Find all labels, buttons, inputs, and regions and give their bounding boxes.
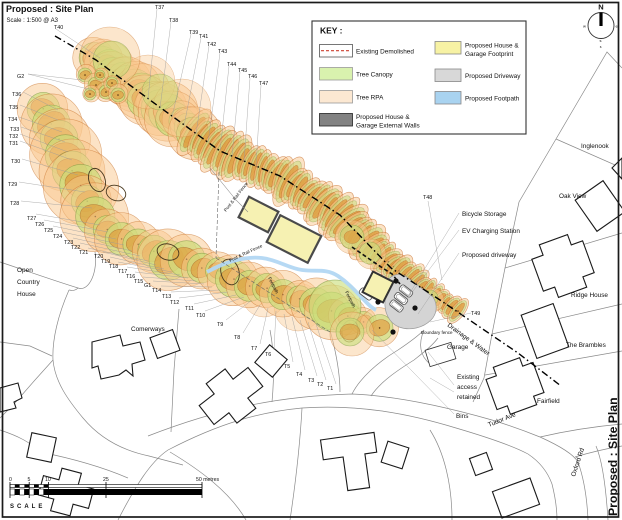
svg-text:SCALE: SCALE: [10, 504, 45, 510]
svg-text:T36: T36: [12, 92, 21, 98]
svg-text:G2: G2: [17, 74, 24, 80]
svg-text:T37: T37: [155, 5, 164, 11]
svg-text:Tree RPA: Tree RPA: [356, 95, 384, 102]
svg-text:s: s: [600, 38, 602, 43]
svg-text:T35: T35: [9, 105, 18, 111]
svg-text:Existing Demolished: Existing Demolished: [356, 49, 414, 56]
svg-text:T26: T26: [35, 222, 44, 228]
svg-text:Garage Footprint: Garage Footprint: [465, 51, 514, 58]
svg-text:T11: T11: [185, 306, 194, 312]
svg-text:T7: T7: [251, 346, 257, 352]
svg-text:House: House: [17, 291, 36, 298]
svg-text:Tree Canopy: Tree Canopy: [356, 72, 394, 79]
svg-text:Proposed Driveway: Proposed Driveway: [465, 73, 521, 80]
svg-text:w: w: [583, 24, 586, 29]
svg-text:T45: T45: [238, 68, 247, 74]
svg-text:50 metres: 50 metres: [196, 477, 219, 483]
svg-text:T2: T2: [317, 382, 323, 388]
svg-text:T25: T25: [44, 228, 53, 234]
svg-text:access: access: [457, 384, 477, 391]
svg-text:Ridge House: Ridge House: [571, 292, 608, 299]
svg-text:N: N: [598, 3, 603, 12]
svg-text:T3: T3: [308, 378, 314, 384]
svg-text:Proposed driveway: Proposed driveway: [462, 252, 517, 259]
svg-text:T4: T4: [296, 372, 302, 378]
svg-text:Proposed House &: Proposed House &: [356, 114, 410, 121]
svg-text:T21: T21: [79, 250, 88, 256]
svg-text:Bicycle Storage: Bicycle Storage: [462, 211, 507, 218]
svg-text:T32: T32: [9, 134, 18, 140]
svg-text:Inglenook: Inglenook: [581, 143, 610, 150]
svg-text:Fairfield: Fairfield: [537, 398, 560, 405]
svg-text:Bins: Bins: [456, 413, 468, 420]
svg-text:T47: T47: [259, 81, 268, 87]
svg-text:T40: T40: [54, 25, 63, 31]
svg-text:Country: Country: [17, 279, 41, 286]
svg-text:T28: T28: [10, 201, 19, 207]
svg-text:T8: T8: [234, 335, 240, 341]
svg-text:Comerways: Comerways: [131, 326, 165, 333]
svg-text:Garage External Walls: Garage External Walls: [356, 123, 420, 130]
svg-text:Garage: Garage: [447, 344, 469, 351]
svg-text:The Brambles: The Brambles: [566, 342, 606, 349]
svg-text:T46: T46: [248, 74, 257, 80]
svg-text:G1: G1: [144, 283, 151, 289]
svg-text:T31: T31: [9, 141, 18, 147]
svg-text:KEY :: KEY :: [320, 26, 343, 36]
svg-text:Proposed : Site Plan: Proposed : Site Plan: [6, 4, 94, 14]
svg-text:Proposed Footpath: Proposed Footpath: [465, 96, 520, 103]
svg-text:T39: T39: [189, 30, 198, 36]
svg-text:s: s: [600, 45, 602, 49]
svg-text:T33: T33: [10, 127, 19, 133]
svg-text:T34: T34: [8, 117, 17, 123]
svg-text:T15: T15: [134, 279, 143, 285]
svg-text:T24: T24: [53, 234, 62, 240]
svg-text:T10: T10: [196, 313, 205, 319]
svg-text:T14: T14: [152, 288, 161, 294]
svg-text:T18: T18: [109, 264, 118, 270]
svg-text:T44: T44: [227, 62, 236, 68]
svg-text:T38: T38: [169, 18, 178, 24]
svg-text:T5: T5: [284, 364, 290, 370]
svg-text:Boundary fence: Boundary fence: [421, 330, 453, 335]
svg-text:Proposed House &: Proposed House &: [465, 43, 519, 50]
svg-text:T43: T43: [218, 49, 227, 55]
svg-text:T41: T41: [199, 34, 208, 40]
svg-text:Open: Open: [17, 267, 33, 274]
svg-text:Scale : 1:500 @ A3: Scale : 1:500 @ A3: [7, 18, 59, 24]
svg-text:retained: retained: [457, 394, 481, 401]
svg-text:T48: T48: [423, 195, 432, 201]
svg-text:T30: T30: [11, 159, 20, 165]
svg-text:0: 0: [9, 477, 12, 483]
svg-text:T29: T29: [8, 182, 17, 188]
svg-text:T9: T9: [217, 322, 223, 328]
svg-text:T12: T12: [170, 300, 179, 306]
svg-text:T49: T49: [471, 311, 480, 317]
svg-text:T6: T6: [265, 352, 271, 358]
svg-text:EV Charging Station: EV Charging Station: [462, 228, 520, 235]
svg-text:10: 10: [45, 477, 51, 483]
svg-text:T42: T42: [207, 42, 216, 48]
svg-text:Existing: Existing: [457, 374, 480, 381]
svg-text:Oak View: Oak View: [559, 193, 587, 200]
svg-text:T1: T1: [327, 386, 333, 392]
